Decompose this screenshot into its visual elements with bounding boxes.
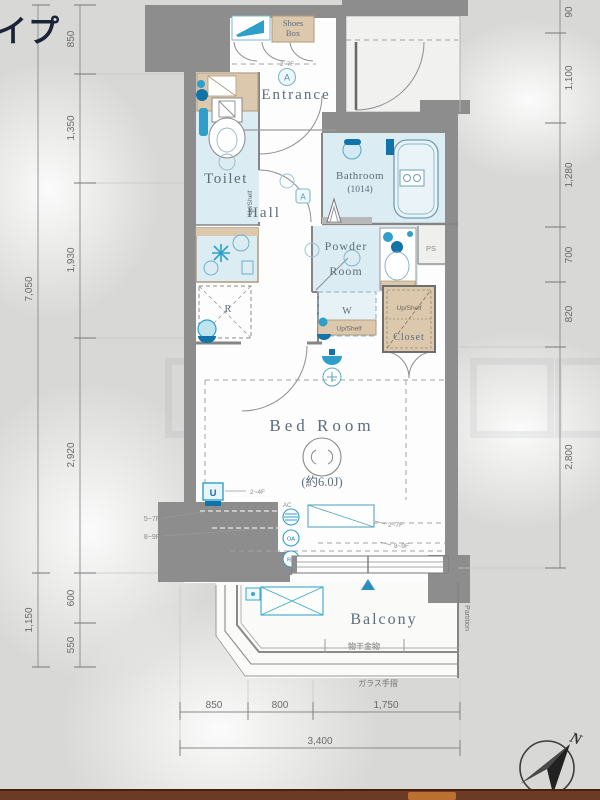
dim-right-2800: 2,800: [564, 444, 575, 469]
fridge-label: R: [225, 304, 232, 315]
dim-right-820: 820: [564, 305, 575, 322]
ps-label: PS: [426, 244, 436, 253]
light-star-icon: [212, 244, 230, 262]
floorplan-page: イプ: [0, 0, 600, 800]
dim-bottom-1750: 1,750: [373, 700, 398, 711]
dim-right-1280: 1,280: [564, 162, 575, 187]
sink-icon: [198, 320, 216, 338]
bathroom-size-label: (1014): [347, 184, 372, 195]
dim-left-550: 550: [66, 636, 77, 653]
shoes-box-label-2: Box: [286, 28, 301, 38]
footer-bar: [0, 789, 600, 800]
compass: N: [520, 729, 585, 795]
toilet-label: Toilet: [204, 171, 248, 187]
floorplan-drawing: Shoes Box: [0, 0, 600, 800]
washer-upshelf-label: Up/Shelf: [337, 326, 362, 333]
dim-bottom-total: 3,400: [307, 736, 332, 747]
powder-room-label-2: Room: [329, 264, 362, 278]
partition-label: Partition: [463, 605, 470, 631]
dim-right-700: 700: [564, 246, 575, 263]
dim-left-600: 600: [66, 589, 77, 606]
dim-left-2920: 2,920: [66, 442, 77, 467]
floors-2-7-entry-label: 2~7F: [280, 62, 294, 68]
dim-right-90: 90: [564, 6, 575, 18]
dim-left-lower-total: 1,150: [24, 607, 35, 632]
floors-8-9-window-label: 8~9F: [394, 543, 409, 550]
bathroom-label: Bathroom: [336, 170, 384, 182]
floors-2-4-label: 2~4F: [250, 489, 265, 496]
shoes-box-label-1: Shoes: [283, 18, 303, 28]
shoes-box: Shoes Box: [232, 16, 314, 42]
floors-2-7-window-label: 2~7F: [388, 522, 403, 529]
vent-oa-label: OA: [287, 537, 295, 543]
toilet-washlet-icon: [197, 80, 205, 88]
closet-upshelf-label: Up/Shelf: [397, 305, 422, 312]
hall-label: Hall: [247, 205, 281, 221]
plan-type-label: イプ: [0, 6, 60, 51]
floors-5-7-label: 5~7F: [144, 516, 160, 523]
powder-room-label-1: Powder: [325, 239, 368, 253]
marker-u: U: [210, 488, 217, 499]
closet-label: Closet: [393, 332, 425, 343]
dim-left-total: 7,050: [24, 276, 35, 301]
north-label: N: [567, 729, 585, 749]
marker-circle-a: A: [284, 73, 290, 83]
vent-ac-label: AC: [283, 503, 292, 509]
floors-8-9-label: 8~9F: [144, 534, 160, 541]
faucet-icon: [319, 318, 328, 327]
footer-cutoff-logo: [408, 792, 456, 800]
dim-left-1930: 1,930: [66, 247, 77, 272]
dim-left-1350: 1,350: [66, 115, 77, 140]
monohoshi-label: 物干金物: [348, 641, 380, 651]
dim-right-1100: 1,100: [564, 65, 575, 90]
closet: Up/Shelf Closet: [383, 286, 435, 352]
balcony-label: Balcony: [350, 611, 417, 628]
bedroom-label: Bed Room: [269, 416, 374, 435]
glass-rail-label: ガラス手摺: [358, 678, 398, 688]
bedroom-size-label: (約6.0J): [301, 474, 342, 489]
dim-bottom-850: 850: [206, 700, 223, 711]
dim-bottom-800: 800: [272, 700, 289, 711]
washer-label: W: [342, 306, 352, 317]
marker-box-a: A: [300, 193, 306, 202]
entrance-label: Entrance: [261, 87, 330, 103]
dim-left-850: 850: [66, 30, 77, 47]
